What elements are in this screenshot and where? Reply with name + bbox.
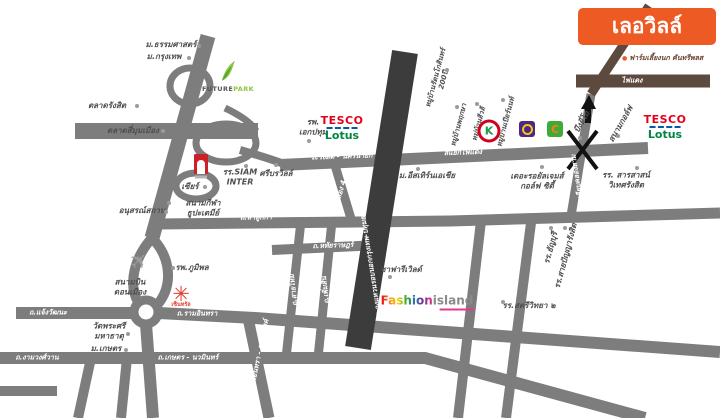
location-dot: [167, 201, 171, 205]
landmark-talad-simummuang: ตลาดสี่มุมเมือง: [107, 126, 159, 136]
location-dot: [416, 167, 420, 171]
landmark-sarasas-line1: รร. สารสาสน์: [602, 170, 650, 180]
location-dot: [455, 105, 459, 109]
lotus-text: Lotus: [644, 129, 687, 140]
landmark-royal-gems-line1: เดอะรอยัลเจมส์: [510, 171, 563, 181]
location-dot: [501, 98, 505, 102]
tesco-text: TESCO: [644, 114, 687, 125]
road-label-redlight: สี่แยกไฟแดง: [444, 149, 482, 157]
future-park-text-future: FUTURE: [202, 85, 233, 93]
location-dot: [540, 165, 544, 169]
scb-emblem-icon: [522, 124, 533, 135]
landmark-royal-gems-line2: กอล์ฟ ซิตี้: [510, 181, 563, 191]
road-ngamwongwan-kasetnawamin: [0, 358, 645, 418]
tesco-lotus-logo-east: TESCO Lotus: [644, 114, 687, 140]
project-logo-badge: เลอวิลล์: [578, 8, 716, 45]
landmark-airport: สนามบิน ดอนเมือง: [114, 277, 146, 296]
location-dot: [563, 226, 567, 230]
road-label-faidaeng: ไฟแดง: [622, 78, 643, 85]
road-label-ramindra: ถ.รามอินทรา: [177, 311, 218, 318]
landmark-thammasat: ม.ธรรมศาสตร์: [145, 40, 196, 50]
landmark-bhumibol: รพ.ภูมิพล: [175, 263, 208, 273]
zeer-logo: [193, 154, 209, 184]
location-dot: [164, 210, 168, 214]
location-dot: [203, 185, 207, 189]
road-phahonyothin-south: [146, 324, 153, 418]
road-small: [78, 358, 91, 418]
location-dot: [388, 275, 392, 279]
lotus-text: Lotus: [321, 130, 364, 141]
location-dot: [616, 134, 620, 138]
road-label-ngamwongwan: ถ.งามวงศ์วาน: [15, 355, 58, 362]
location-dot: [126, 332, 130, 336]
landmark-sri-bora: ศรีบรวิลล์: [259, 169, 292, 179]
location-dot: [549, 226, 553, 230]
road-label-lamlukka: ถ.ลำลูกกา: [240, 214, 272, 222]
landmark-watphrasri-line2: มหาธาตุ: [93, 331, 126, 341]
landmark-memorial: อนุสรณ์สถาน: [119, 206, 166, 216]
road-label-chaengwattana: ถ.แจ้งวัฒนะ: [29, 310, 67, 317]
landmark-kaset-u: ม.เกษตร: [91, 344, 122, 354]
fashion-island-tagline-bar: [439, 309, 473, 311]
location-dot: [635, 166, 639, 170]
road-small: [121, 358, 127, 418]
landmark-bangkok-u: ม.กรุงเทพ: [147, 52, 182, 62]
fashion-island-text-island: island: [433, 294, 474, 308]
bullet-icon: ●: [622, 55, 627, 62]
landmark-eastern-asia: ม.อีสเทิร์นเอเชีย: [399, 171, 455, 181]
route-map-canvas: เลอวิลล์ ●ฟาร์มเลี้ยงนก คันทรีพลส ถ.รังส…: [0, 0, 720, 418]
landmark-stadium-line2: ธูปะเตมีย์: [186, 208, 221, 218]
tesco-text: TESCO: [321, 115, 364, 126]
location-dot: [135, 104, 139, 108]
landmark-airport-line1: สนามบิน: [114, 277, 146, 287]
project-subtitle: ●ฟาร์มเลี้ยงนก คันทรีพลส: [622, 53, 718, 64]
roundabout-laksi: [134, 300, 158, 324]
road-airport-east: [152, 238, 168, 304]
location-dot: [445, 68, 449, 72]
future-park-logo: FUTUREPARK: [202, 60, 254, 93]
project-subtitle-text: ฟาร์มเลี้ยงนก คันทรีพลส: [629, 54, 703, 62]
location-dot: [171, 266, 175, 270]
landmark-safari-world: ซาฟารีเวิลด์: [380, 265, 422, 275]
central-caption: เซ็นทรัล: [171, 303, 190, 309]
landmark-stadium-line1: สนามกีฬา: [186, 198, 221, 208]
location-dot: [274, 163, 278, 167]
location-dot: [124, 348, 128, 352]
future-park-text-park: PARK: [233, 85, 254, 93]
road-label-kasetnawamin: ถ.เกษตร - นวมินทร์: [158, 355, 219, 362]
landmark-watphrasri-line1: วัดพระศรี: [93, 321, 126, 331]
landmark-talad-rangsit: ตลาดรังสิต: [88, 101, 126, 111]
location-dot: [244, 164, 248, 168]
landmark-siam-inter-line1: รร.SIAM: [223, 167, 258, 177]
scb-logo: [519, 121, 535, 137]
landmark-royal-gems: เดอะรอยัลเจมส์ กอล์ฟ ซิตี้: [510, 171, 563, 190]
landmark-sarasas-line2: วิเทศรังสิต: [602, 180, 650, 190]
location-dot: [307, 139, 311, 143]
location-dot: [475, 102, 479, 106]
landmark-stadium: สนามกีฬา ธูปะเตมีย์: [186, 198, 221, 217]
location-dot: [501, 300, 505, 304]
central-logo: ✳ เซ็นทรัล: [171, 284, 190, 309]
kbank-logo: K: [478, 120, 501, 143]
landmark-siam-inter-line2: INTER: [223, 177, 258, 187]
road-label-hathairat: ถ.หทัยราษฎร์: [312, 242, 353, 250]
landmark-airport-line2: ดอนเมือง: [114, 287, 146, 297]
road-ramindra: [159, 313, 720, 352]
landmark-sarasas: รร. สารสาสน์ วิเทศรังสิต: [602, 170, 650, 189]
fashion-island-logo: Fashionisland: [381, 292, 474, 311]
bigc-logo: C: [547, 121, 563, 137]
location-dot: [161, 129, 165, 133]
fashion-island-text-fashion: Fashion: [381, 294, 433, 308]
landmark-siam-inter: รร.SIAM INTER: [223, 167, 258, 186]
location-dot: [578, 136, 582, 140]
landmark-satri-wit: รร.สตรีวิทยา ๒: [502, 301, 555, 311]
location-dot: [187, 56, 191, 60]
tesco-lotus-logo-west: TESCO Lotus: [321, 115, 364, 141]
location-dot: [197, 44, 201, 48]
future-park-leaf-icon: [219, 60, 237, 82]
landmark-watphrasri: วัดพระศรี มหาธาตุ: [93, 321, 126, 340]
road-vertical-east1: [458, 221, 481, 418]
zeer-gate-icon: [193, 154, 209, 180]
